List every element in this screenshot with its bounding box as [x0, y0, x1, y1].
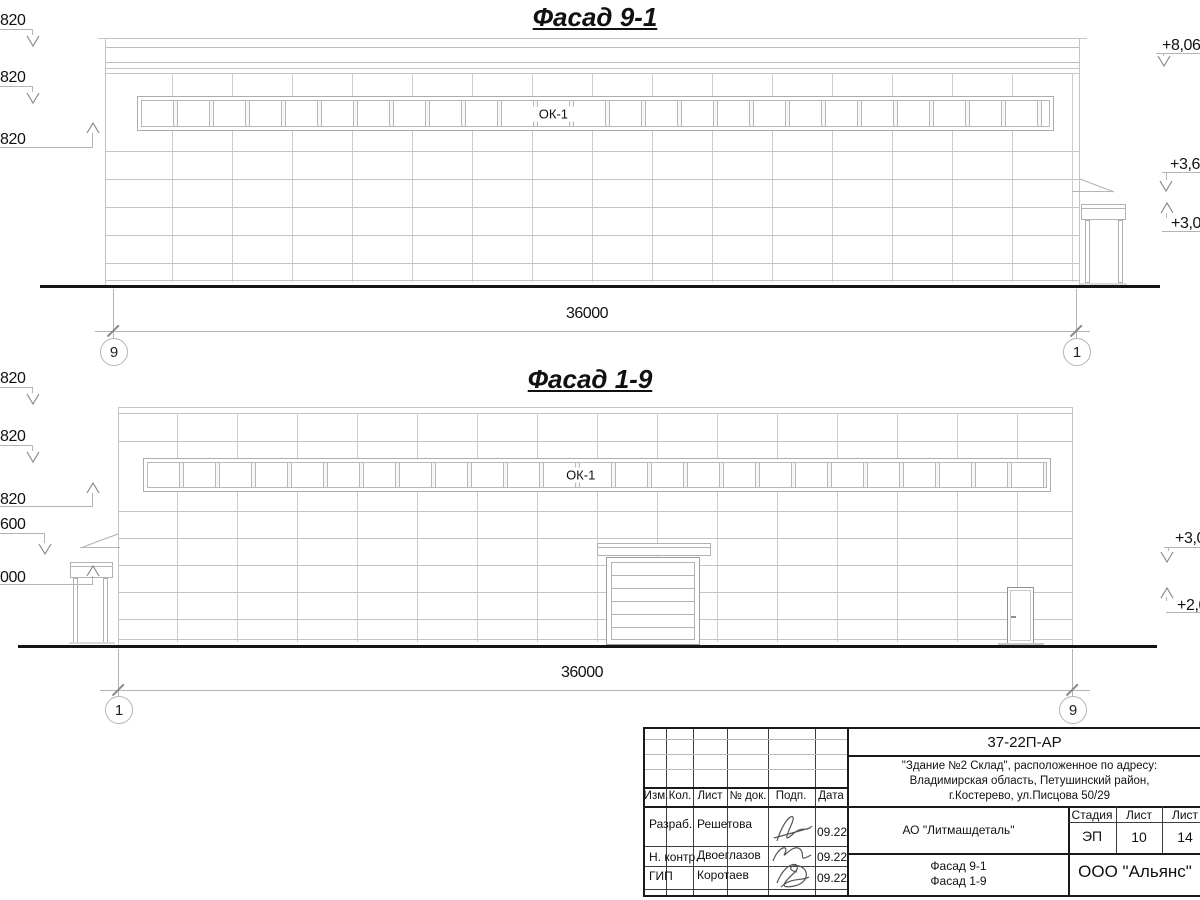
- annex-beam-line: [1081, 208, 1126, 209]
- axis-bubble: 9: [100, 338, 128, 366]
- elevation-leader: [92, 493, 93, 506]
- elevation-arrow-down-icon: [26, 35, 40, 47]
- axis-number: 1: [115, 702, 123, 719]
- gate-lintel-line: [597, 547, 711, 548]
- elevation-leader: [92, 576, 93, 584]
- axis-bubble: 1: [105, 696, 133, 724]
- elevation-leader: [44, 533, 45, 543]
- extension-line: [113, 289, 114, 341]
- elevation-value: +3,0: [1175, 530, 1200, 548]
- panel-course-lines: [119, 491, 1072, 637]
- organization-name: ООО "Альянс": [1068, 862, 1200, 882]
- elevation-leader: [0, 387, 33, 388]
- axis-number: 9: [110, 344, 118, 361]
- elevation-leader: [1162, 172, 1200, 173]
- sheet-title-line: Фасад 1-9: [849, 874, 1068, 888]
- gate-slats: [611, 562, 695, 640]
- elevation-value: 600: [0, 516, 26, 534]
- grid-line: [849, 853, 1200, 855]
- elevation-arrow-up-icon: [86, 482, 100, 494]
- facade-1-9-title: Фасад 1-9: [440, 364, 740, 395]
- rev-header-doc: № док.: [729, 790, 767, 802]
- staff-role: Разраб.: [649, 817, 692, 831]
- axis-bubble: 9: [1059, 696, 1087, 724]
- annex-post: [73, 578, 78, 644]
- dimension-value: 36000: [547, 664, 617, 682]
- rev-header-podp: Подп.: [773, 790, 809, 802]
- fascia-line: [105, 68, 1080, 69]
- canopy-slope: [78, 531, 122, 551]
- grid-line: [849, 755, 1200, 757]
- dimension-line: [100, 690, 1090, 691]
- roof-edge-line: [118, 407, 1073, 408]
- plinth-line: [106, 280, 1079, 281]
- staff-role: ГИП: [649, 869, 673, 883]
- elevation-arrow-down-icon: [38, 543, 52, 555]
- project-address-line: г.Костерево, ул.Писцова 50/29: [859, 790, 1200, 802]
- annex-base: [69, 642, 115, 644]
- grid-line: [645, 739, 847, 740]
- elevation-arrow-down-icon: [26, 92, 40, 104]
- door-handle: [1011, 616, 1016, 618]
- canopy-underside-line: [80, 547, 120, 548]
- project-address-line: Владимирская область, Петушинский район,: [859, 775, 1200, 787]
- elevation-value: 820: [0, 428, 26, 446]
- elevation-leader: [0, 584, 93, 585]
- ground-line: [40, 285, 1160, 288]
- grid-line: [645, 889, 847, 890]
- elevation-value: 820: [0, 69, 26, 87]
- window-band: ОК-1: [143, 458, 1051, 492]
- canopy-slope: [1072, 175, 1120, 195]
- elevation-leader: [0, 147, 93, 148]
- elevation-leader: [0, 533, 45, 534]
- elevation-leader: [1162, 231, 1200, 232]
- window-mark-label: ОК-1: [556, 468, 605, 483]
- elevation-arrow-up-icon: [1160, 587, 1174, 599]
- elevation-leader: [0, 506, 93, 507]
- elevation-leader: [1166, 597, 1167, 601]
- staff-date: 09.22: [817, 871, 847, 885]
- elevation-leader: [1166, 612, 1200, 613]
- grid-line: [645, 787, 847, 789]
- annex-post: [103, 578, 108, 644]
- roof-edge-line: [98, 38, 1087, 39]
- grid-line: [645, 806, 847, 808]
- elevation-arrow-up-icon: [1160, 202, 1174, 214]
- elevation-leader: [0, 86, 33, 87]
- sheet-header: Лист: [1116, 808, 1162, 822]
- elevation-leader: [0, 445, 33, 446]
- grid-line: [1162, 806, 1163, 853]
- sheet-title-line: Фасад 9-1: [849, 859, 1068, 873]
- grid-line: [645, 866, 847, 867]
- elevation-leader: [0, 29, 33, 30]
- dimension-value: 36000: [552, 305, 622, 323]
- elevation-arrow-up-icon: [86, 122, 100, 134]
- extension-line: [1076, 289, 1077, 341]
- title-block: Изм. Кол. Лист № док. Подп. Дата Разраб.…: [643, 727, 1200, 897]
- elevation-arrow-up-icon: [86, 565, 100, 577]
- grid-line: [645, 769, 847, 770]
- ground-line: [18, 645, 1157, 648]
- grid-line: [1068, 822, 1200, 823]
- staff-date: 09.22: [817, 850, 847, 864]
- sheet-number: 10: [1116, 829, 1162, 845]
- facade-9-1-title: Фасад 9-1: [445, 2, 745, 33]
- annex-post: [1118, 220, 1123, 283]
- staff-name: Коротаев: [697, 868, 749, 882]
- rev-header-data: Дата: [813, 790, 849, 802]
- document-number: 37-22П-АР: [849, 734, 1200, 751]
- canopy-underside-line: [1072, 191, 1112, 192]
- elevation-arrow-down-icon: [1159, 180, 1173, 192]
- panel-course-line: [119, 441, 1072, 442]
- window-mark-label: ОК-1: [529, 106, 578, 121]
- elevation-arrow-down-icon: [26, 451, 40, 463]
- stage-header: Стадия: [1068, 808, 1116, 822]
- staff-date: 09.22: [817, 825, 847, 839]
- stage-value: ЭП: [1068, 828, 1116, 844]
- sheets-header: Лист: [1164, 808, 1200, 822]
- elevation-arrow-down-icon: [26, 393, 40, 405]
- sheet-count: 14: [1164, 829, 1200, 845]
- axis-number: 1: [1073, 344, 1081, 361]
- project-address-line: "Здание №2 Склад", расположенное по адре…: [859, 760, 1200, 772]
- annex-post: [1085, 220, 1090, 283]
- elevation-leader: [92, 133, 93, 147]
- staff-role: Н. контр.: [649, 850, 699, 864]
- grid-line: [645, 754, 847, 755]
- dimension-line: [95, 331, 1090, 332]
- gate-lintel: [597, 543, 711, 556]
- panel-course-lines: [106, 130, 1079, 282]
- annex-beam: [1081, 204, 1126, 220]
- elevation-arrow-down-icon: [1157, 55, 1171, 67]
- plinth-line: [119, 639, 1072, 640]
- staff-name: Двоеглазов: [697, 848, 761, 862]
- elevation-leader: [1166, 172, 1167, 180]
- extension-line: [1072, 649, 1073, 699]
- wall-outline-right: [1079, 38, 1080, 287]
- drawing-canvas: Фасад 9-1 ОК-1: [0, 0, 1200, 900]
- client-name: АО "Литмашдеталь": [849, 823, 1068, 837]
- axis-number: 9: [1069, 702, 1077, 719]
- window-band-cells: [141, 100, 1050, 127]
- elevation-arrow-down-icon: [1160, 551, 1174, 563]
- parapet-band: [105, 47, 1080, 63]
- signature: [769, 857, 815, 891]
- grid-line: [645, 846, 847, 847]
- extension-line: [118, 649, 119, 699]
- axis-bubble: 1: [1063, 338, 1091, 366]
- elevation-leader: [1164, 547, 1200, 548]
- elevation-value: 820: [0, 370, 26, 388]
- elevation-leader: [1166, 213, 1167, 218]
- rev-header-list: Лист: [692, 790, 728, 802]
- elevation-value: 820: [0, 12, 26, 30]
- window-band: ОК-1: [137, 96, 1054, 131]
- staff-name: Решетова: [697, 817, 752, 831]
